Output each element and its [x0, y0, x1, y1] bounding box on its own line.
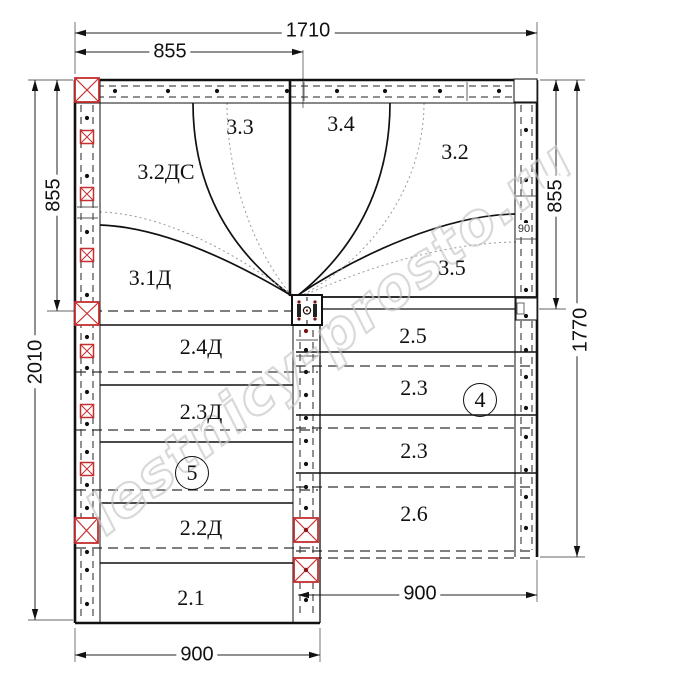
dim-right-total: 1770 — [570, 304, 593, 357]
step-label-2-3-lower: 2.3 — [400, 438, 428, 464]
step-label-2-5: 2.5 — [399, 323, 427, 349]
step-label-2-6: 2.6 — [400, 501, 428, 527]
dim-top-half: 855 — [149, 41, 190, 64]
step-label-3-5: 3.5 — [438, 255, 466, 281]
step-label-2-1: 2.1 — [177, 585, 205, 611]
white-post-icon — [514, 79, 537, 102]
step-label-3-2: 3.2 — [441, 139, 469, 165]
step-label-2-3-upper: 2.3 — [400, 375, 428, 401]
step-label-2-4d: 2.4Д — [180, 334, 223, 360]
step-label-2-3d: 2.3Д — [180, 399, 223, 425]
step-label-3-2ds: 3.2ДС — [137, 159, 194, 185]
dim-left-upper: 855 — [43, 174, 66, 215]
dim-bottom-left: 900 — [176, 644, 217, 667]
stair-plan-drawing: lestnicy-prosto.ru 1710 855 855 2010 855… — [0, 0, 690, 694]
white-post-notch — [517, 303, 524, 314]
dim-bottom-right: 900 — [399, 583, 440, 606]
step-label-2-2d: 2.2Д — [180, 515, 223, 541]
flight-marker-4: 4 — [463, 383, 497, 417]
dim-winder-gap: 90 — [517, 223, 531, 235]
dim-right-upper: 855 — [545, 175, 568, 216]
dim-top-total: 1710 — [282, 20, 335, 43]
dim-left-total: 2010 — [25, 336, 48, 389]
step-label-3-4: 3.4 — [327, 111, 355, 137]
step-label-3-3: 3.3 — [226, 114, 254, 140]
step-label-3-1d: 3.1Д — [129, 265, 172, 291]
flight-marker-5: 5 — [175, 456, 209, 490]
